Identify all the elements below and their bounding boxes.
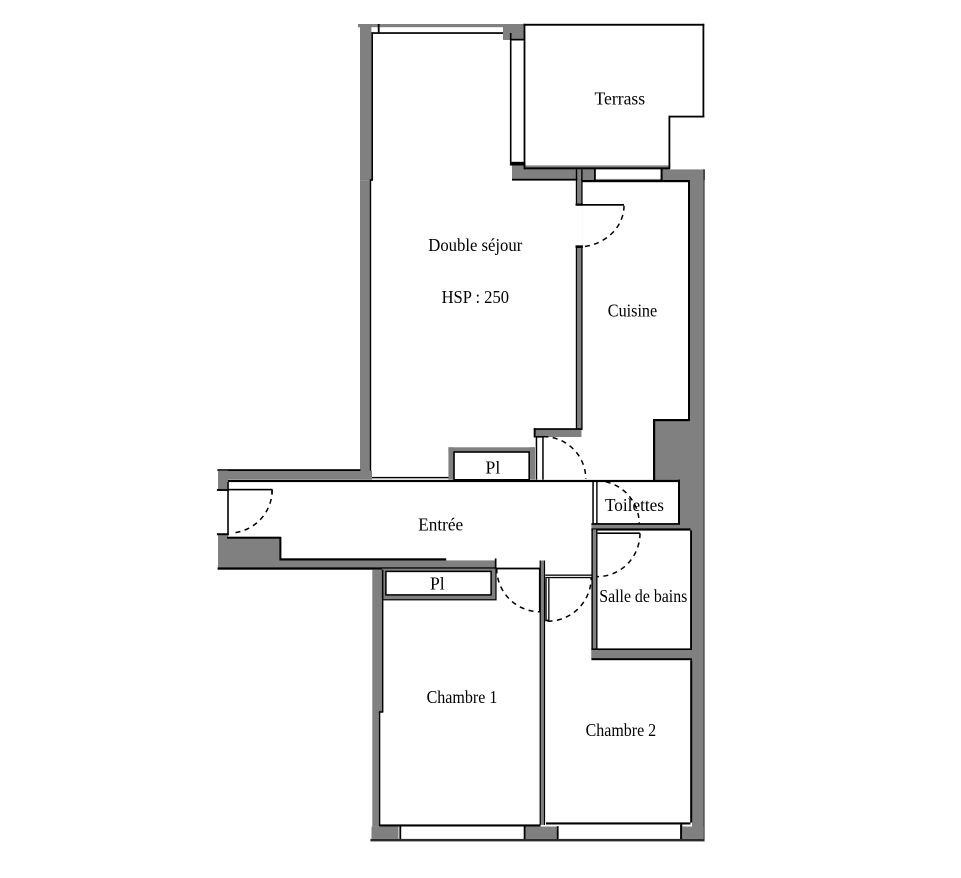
svg-text:Salle de bains: Salle de bains bbox=[599, 586, 687, 606]
svg-text:Entrée: Entrée bbox=[418, 515, 463, 535]
svg-text:Chambre 1: Chambre 1 bbox=[427, 687, 498, 707]
svg-text:Pl: Pl bbox=[486, 457, 501, 477]
svg-text:Cuisine: Cuisine bbox=[608, 300, 658, 320]
svg-text:Pl: Pl bbox=[430, 574, 445, 594]
svg-text:Terrass: Terrass bbox=[595, 89, 646, 109]
svg-text:Double séjour: Double séjour bbox=[428, 235, 522, 255]
svg-text:HSP : 250: HSP : 250 bbox=[442, 287, 510, 307]
svg-text:Chambre 2: Chambre 2 bbox=[586, 720, 657, 740]
svg-text:Toilettes: Toilettes bbox=[605, 495, 664, 515]
